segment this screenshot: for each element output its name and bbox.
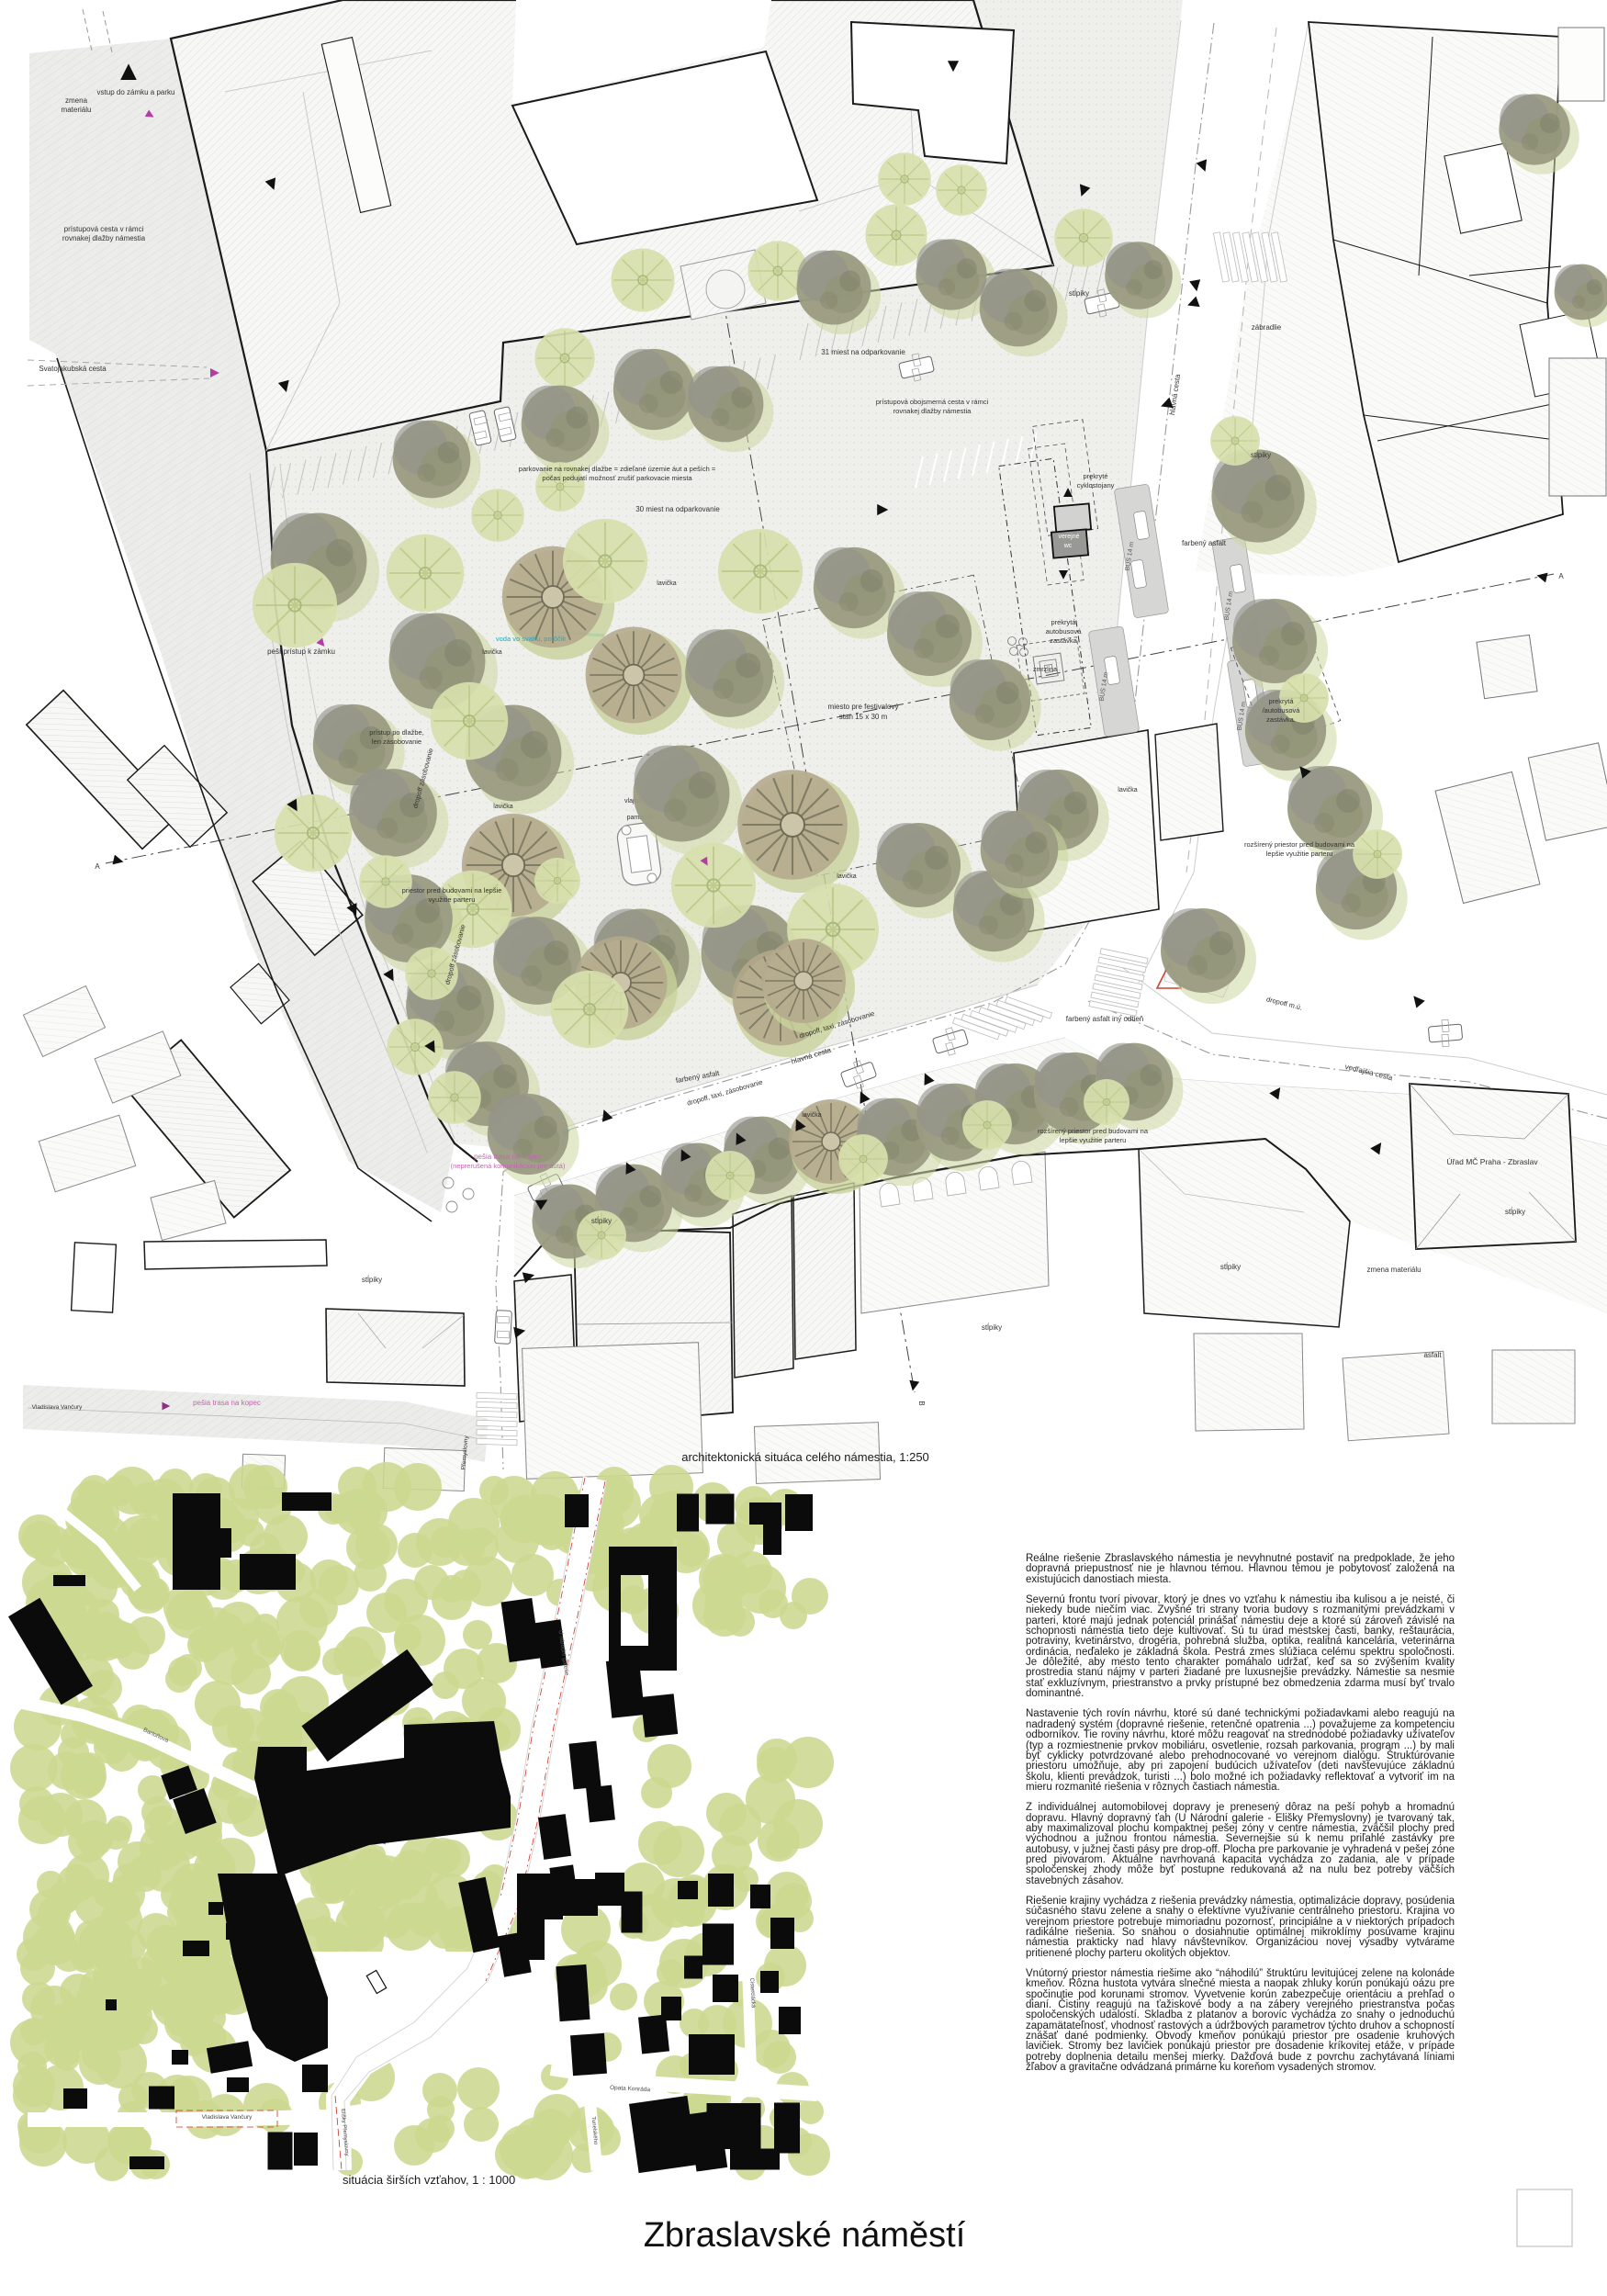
svg-text:stĺpiky: stĺpiky bbox=[1251, 451, 1271, 459]
svg-text:vstup do zámku a parku: vstup do zámku a parku bbox=[97, 88, 175, 96]
svg-text:/autobusová: /autobusová bbox=[1263, 706, 1301, 715]
svg-text:lepšie využitie parteru: lepšie využitie parteru bbox=[1266, 850, 1333, 858]
svg-text:stan 15 x 30 m: stan 15 x 30 m bbox=[839, 713, 888, 721]
svg-text:30 miest na odparkovanie: 30 miest na odparkovanie bbox=[635, 505, 720, 513]
svg-text:priestor pred budovami na lepš: priestor pred budovami na lepšie bbox=[402, 886, 502, 895]
svg-text:využitie parteru: využitie parteru bbox=[429, 895, 476, 904]
svg-text:miesto pre festivalový: miesto pre festivalový bbox=[828, 703, 899, 711]
svg-text:Svatojakubská cesta: Svatojakubská cesta bbox=[39, 365, 107, 373]
svg-text:lavička: lavička bbox=[837, 873, 857, 880]
svg-text:zastávka: zastávka bbox=[1050, 636, 1077, 645]
svg-text:zmena materiálu: zmena materiálu bbox=[1366, 1266, 1421, 1274]
svg-text:autobusová: autobusová bbox=[1046, 627, 1083, 636]
svg-text:prístupová cesta v rámci: prístupová cesta v rámci bbox=[64, 225, 144, 233]
svg-text:architektonická situáca celého: architektonická situáca celého námestia,… bbox=[681, 1450, 929, 1464]
svg-text:zastávka.: zastávka. bbox=[1266, 715, 1296, 724]
svg-text:Opata Konráda: Opata Konráda bbox=[610, 2085, 651, 2093]
svg-text:rozšírený priestor pred budova: rozšírený priestor pred budovami na bbox=[1038, 1127, 1149, 1135]
svg-text:situácia širších vzťahov, 1 :: situácia širších vzťahov, 1 : 1000 bbox=[343, 2173, 515, 2187]
svg-text:B: B bbox=[917, 1401, 926, 1405]
svg-text:parkovanie na rovnakej dlažbe: parkovanie na rovnakej dlažbe = zdieľané… bbox=[519, 465, 716, 473]
svg-text:materiálu: materiálu bbox=[62, 106, 92, 114]
svg-text:A: A bbox=[95, 862, 100, 871]
svg-text:prístupová obojsmerná cesta v: prístupová obojsmerná cesta v rámci bbox=[876, 398, 989, 406]
svg-text:farbený asfalt: farbený asfalt bbox=[1182, 539, 1227, 547]
svg-text:rozšírený priestor pred budova: rozšírený priestor pred budovami na bbox=[1244, 840, 1355, 849]
svg-text:zmena: zmena bbox=[65, 96, 88, 105]
svg-text:peší prístup k zámku: peší prístup k zámku bbox=[267, 647, 335, 656]
svg-text:stĺpiky: stĺpiky bbox=[982, 1323, 1002, 1332]
svg-text:len zásobovanie: len zásobovanie bbox=[372, 737, 421, 746]
svg-text:stĺpiky: stĺpiky bbox=[591, 1217, 612, 1225]
svg-text:lavička: lavička bbox=[802, 1112, 822, 1119]
svg-text:dropoff m.ú.: dropoff m.ú. bbox=[1265, 995, 1303, 1011]
svg-text:stĺpiky: stĺpiky bbox=[1069, 289, 1089, 298]
svg-text:zábradlie: zábradlie bbox=[1252, 323, 1282, 332]
svg-text:stĺpiky: stĺpiky bbox=[362, 1276, 382, 1284]
svg-text:cyklostojany: cyklostojany bbox=[1077, 481, 1115, 490]
svg-text:stĺpiky: stĺpiky bbox=[1220, 1263, 1241, 1271]
svg-text:verejné: verejné bbox=[1059, 534, 1080, 540]
svg-text:Vladislava Vančury: Vladislava Vančury bbox=[32, 1404, 84, 1411]
svg-text:prekrytá: prekrytá bbox=[1268, 697, 1294, 705]
svg-text:A: A bbox=[1558, 572, 1564, 580]
svg-text:lavička: lavička bbox=[657, 580, 677, 587]
svg-text:(neprerušená komunikáciou pre: (neprerušená komunikáciou pre autá) bbox=[451, 1162, 566, 1170]
svg-text:pešia trasa na kopec: pešia trasa na kopec bbox=[193, 1399, 261, 1407]
svg-text:lavička: lavička bbox=[493, 804, 513, 810]
svg-text:asfalt: asfalt bbox=[1423, 1351, 1442, 1359]
svg-text:počas podujatí možnosť zrušiť: počas podujatí možnosť zrušiť parkovacie… bbox=[542, 474, 692, 482]
svg-text:prístup po dlažbe,: prístup po dlažbe, bbox=[369, 728, 424, 737]
svg-text:farbený asfalt iný odtieň: farbený asfalt iný odtieň bbox=[1066, 1015, 1144, 1023]
svg-text:prekryté: prekryté bbox=[1083, 472, 1107, 480]
svg-text:lepšie využitie parteru: lepšie využitie parteru bbox=[1060, 1136, 1127, 1144]
svg-text:wc: wc bbox=[1063, 543, 1073, 549]
svg-text:rovnakej dlažby námestia: rovnakej dlažby námestia bbox=[893, 407, 972, 415]
svg-text:rovnakej dlažby námestia: rovnakej dlažby námestia bbox=[62, 234, 146, 242]
svg-text:31 miest na odparkovanie: 31 miest na odparkovanie bbox=[821, 348, 905, 356]
svg-text:zmrzlina: zmrzlina bbox=[1033, 667, 1057, 673]
svg-text:lavička: lavička bbox=[482, 649, 502, 656]
svg-text:voda vo svahu, potôčik: voda vo svahu, potôčik bbox=[496, 635, 567, 643]
svg-text:Úřad MČ Praha - Zbraslav: Úřad MČ Praha - Zbraslav bbox=[1446, 1157, 1538, 1166]
svg-text:stĺpiky: stĺpiky bbox=[1505, 1208, 1525, 1216]
svg-text:lavička: lavička bbox=[1118, 787, 1138, 793]
svg-text:prekrytá: prekrytá bbox=[1051, 618, 1076, 626]
svg-text:pešia trasa na kopec: pešia trasa na kopec bbox=[474, 1153, 542, 1161]
svg-text:Vladislava Vančury: Vladislava Vančury bbox=[202, 2114, 253, 2121]
